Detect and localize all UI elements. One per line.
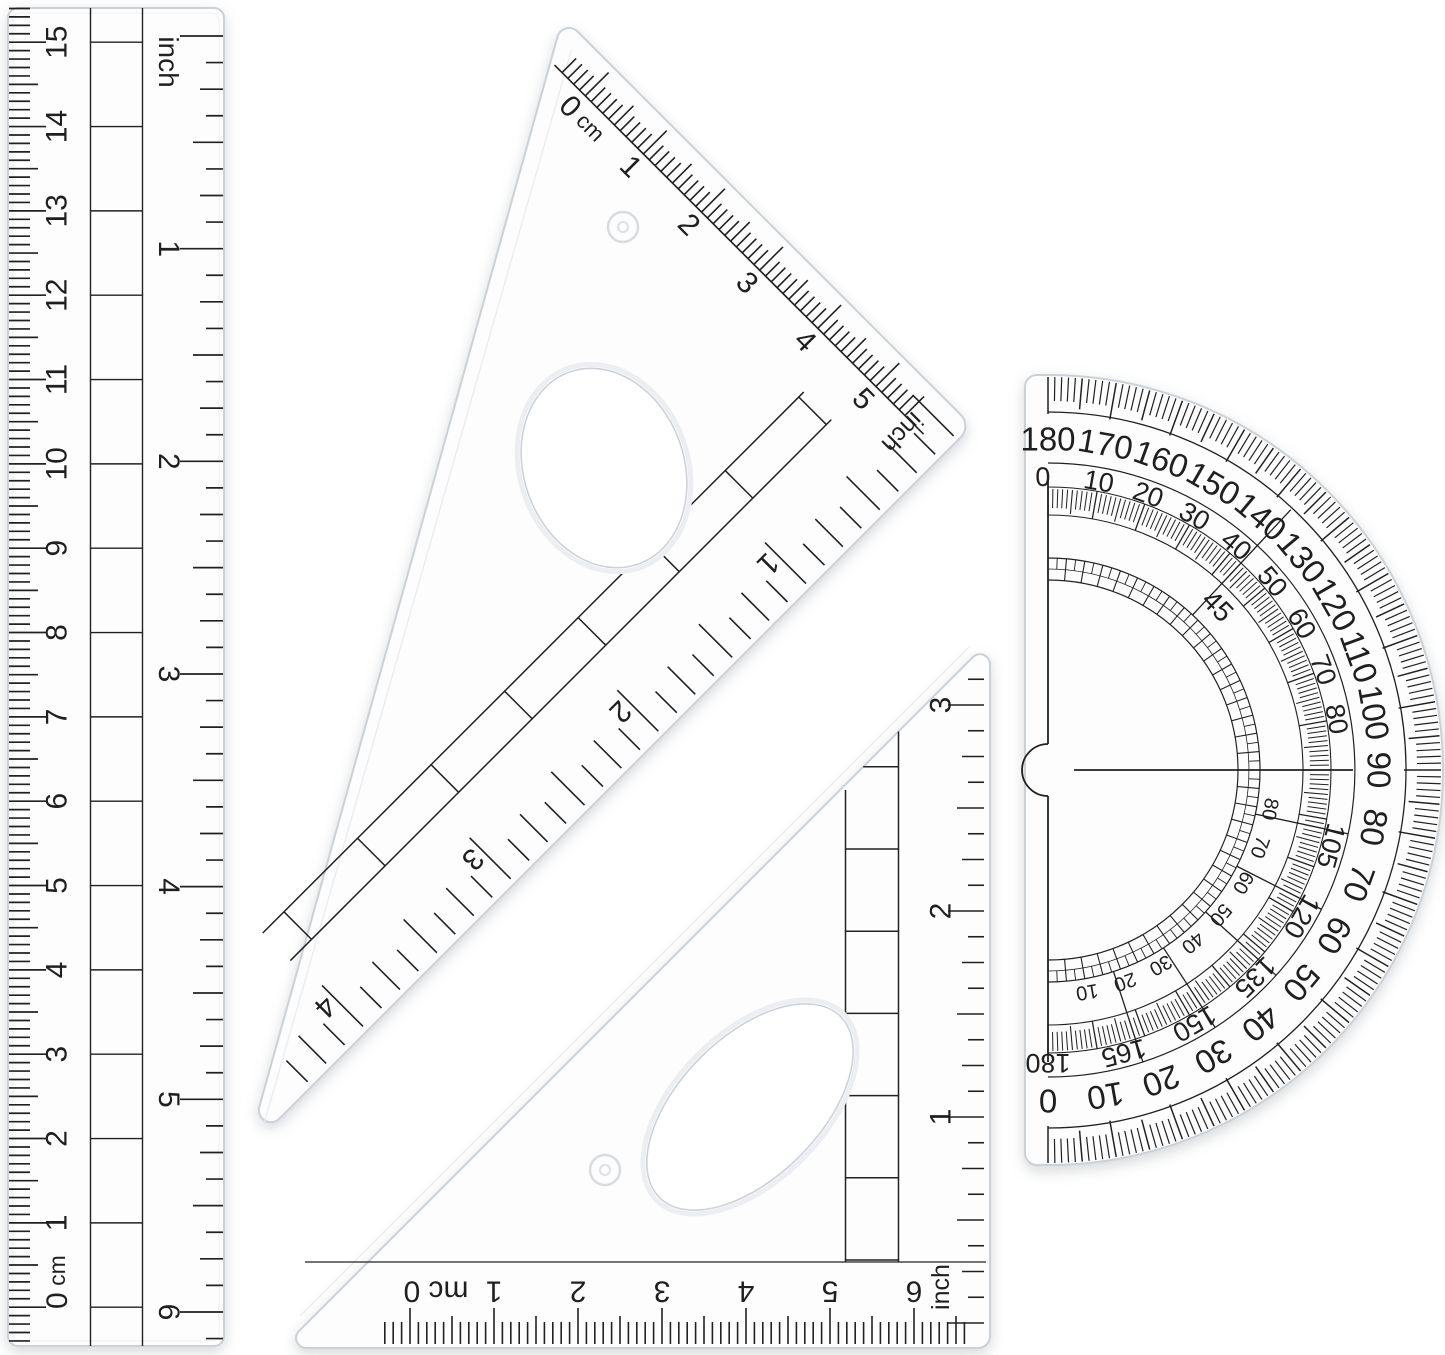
ruler-cm-number: 7 xyxy=(41,709,74,726)
protractor-inner-tick xyxy=(1057,1032,1058,1051)
triangle-small-cm-zero-label: mc 0 xyxy=(403,1275,468,1308)
triangle-small-inch-unit-label: inch xyxy=(927,1264,955,1310)
ruler-cm-number: 14 xyxy=(41,110,74,143)
ruler-inch-number: 3 xyxy=(152,666,185,683)
protractor-ladder-number: 10 xyxy=(1074,979,1100,1005)
ruler-inch-number: 1 xyxy=(152,240,185,257)
protractor: 1801701601501401301201101009080706050403… xyxy=(1000,355,1445,1200)
ruler-cm-number: 2 xyxy=(41,1130,74,1147)
protractor-outer-number: 0 xyxy=(1039,1083,1057,1120)
protractor-outer-tick xyxy=(1417,783,1441,784)
triangle-small-cm-number: 6 xyxy=(906,1275,923,1308)
ruler-cm-number: 15 xyxy=(41,26,74,59)
triangle-small-cm-number: 4 xyxy=(738,1275,755,1308)
triangle-small-cm-number: 2 xyxy=(570,1275,587,1308)
ruler-cm-number: 3 xyxy=(41,1046,74,1063)
protractor-outer-tick xyxy=(1061,1139,1062,1163)
protractor-outer-number: 90 xyxy=(1361,752,1398,789)
ruler-cm-zero-label: 0 cm xyxy=(41,1255,74,1309)
set-square-small: 123456mc 0123inch xyxy=(270,620,1010,1355)
ruler-cm-number: 12 xyxy=(41,279,74,312)
ruler-cm-number: 6 xyxy=(41,793,74,810)
ruler-cm-number: 8 xyxy=(41,624,74,641)
protractor-outer-number: 80 xyxy=(1353,806,1396,849)
protractor-inner-tick xyxy=(1310,779,1329,780)
ruler-cm-number: 4 xyxy=(41,962,74,979)
protractor-ladder-number: 80 xyxy=(1257,796,1283,822)
triangle-small-cm-number: 3 xyxy=(654,1275,671,1308)
protractor-inner-number: 10 xyxy=(1081,464,1116,499)
ruler-inch-number: 6 xyxy=(152,1304,185,1321)
protractor-outer-tick xyxy=(1061,377,1062,401)
ruler-cm-number: 1 xyxy=(41,1215,74,1232)
triangle-small-inch-number: 2 xyxy=(925,903,958,920)
triangle-small-inch-number: 3 xyxy=(925,697,958,714)
ruler-cm-number: 10 xyxy=(41,447,74,480)
ruler-inch-number: 4 xyxy=(152,878,185,895)
protractor-outer-number: 180 xyxy=(1020,421,1075,458)
protractor-inner-tick xyxy=(1310,760,1329,761)
ruler-cm-number: 9 xyxy=(41,540,74,557)
ruler: 1234567891011121314150 cm123456inch xyxy=(0,0,240,1355)
ruler-cm-number: 11 xyxy=(41,364,74,395)
geometry-set-photo: 1234567891011121314150 cm123456inch 1234… xyxy=(0,0,1445,1355)
ruler-inch-number: 2 xyxy=(152,453,185,470)
ruler-cm-number: 13 xyxy=(41,194,74,227)
protractor-inner-number: 80 xyxy=(1319,702,1354,737)
protractor-inner-tick xyxy=(1057,489,1058,508)
protractor-outer-tick xyxy=(1417,756,1441,757)
triangle-small-cm-number: 5 xyxy=(822,1275,839,1308)
triangle-small-cm-number: 1 xyxy=(486,1275,503,1308)
triangle-small-inch-number: 1 xyxy=(925,1109,958,1126)
ruler-cm-number: 5 xyxy=(41,877,74,894)
ruler-inch-number: 5 xyxy=(152,1091,185,1108)
ruler-inch-unit-label: inch xyxy=(153,36,184,87)
triangle-small-body xyxy=(296,654,990,1348)
protractor-outer-number: 10 xyxy=(1084,1075,1127,1118)
